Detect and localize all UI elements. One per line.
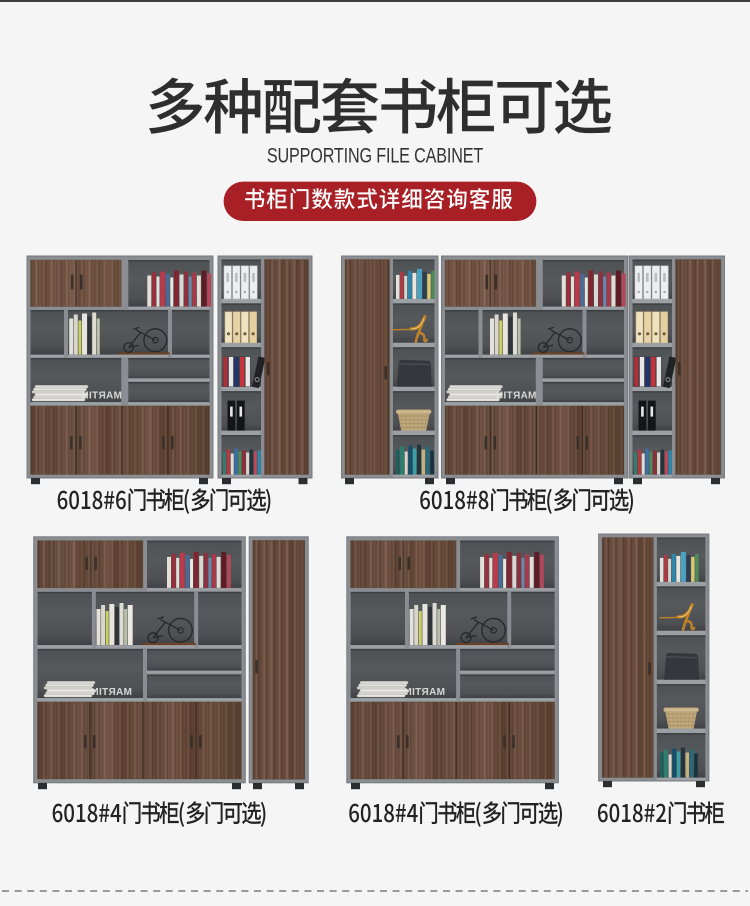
svg-text:MARTIN: MARTIN [496, 391, 537, 402]
svg-text:SUPPORTING FILE CABINET: SUPPORTING FILE CABINET [267, 143, 484, 167]
svg-text:MARTIN: MARTIN [81, 391, 122, 402]
svg-text:MARTIN: MARTIN [404, 687, 445, 698]
svg-text:MARTIN: MARTIN [91, 687, 132, 698]
